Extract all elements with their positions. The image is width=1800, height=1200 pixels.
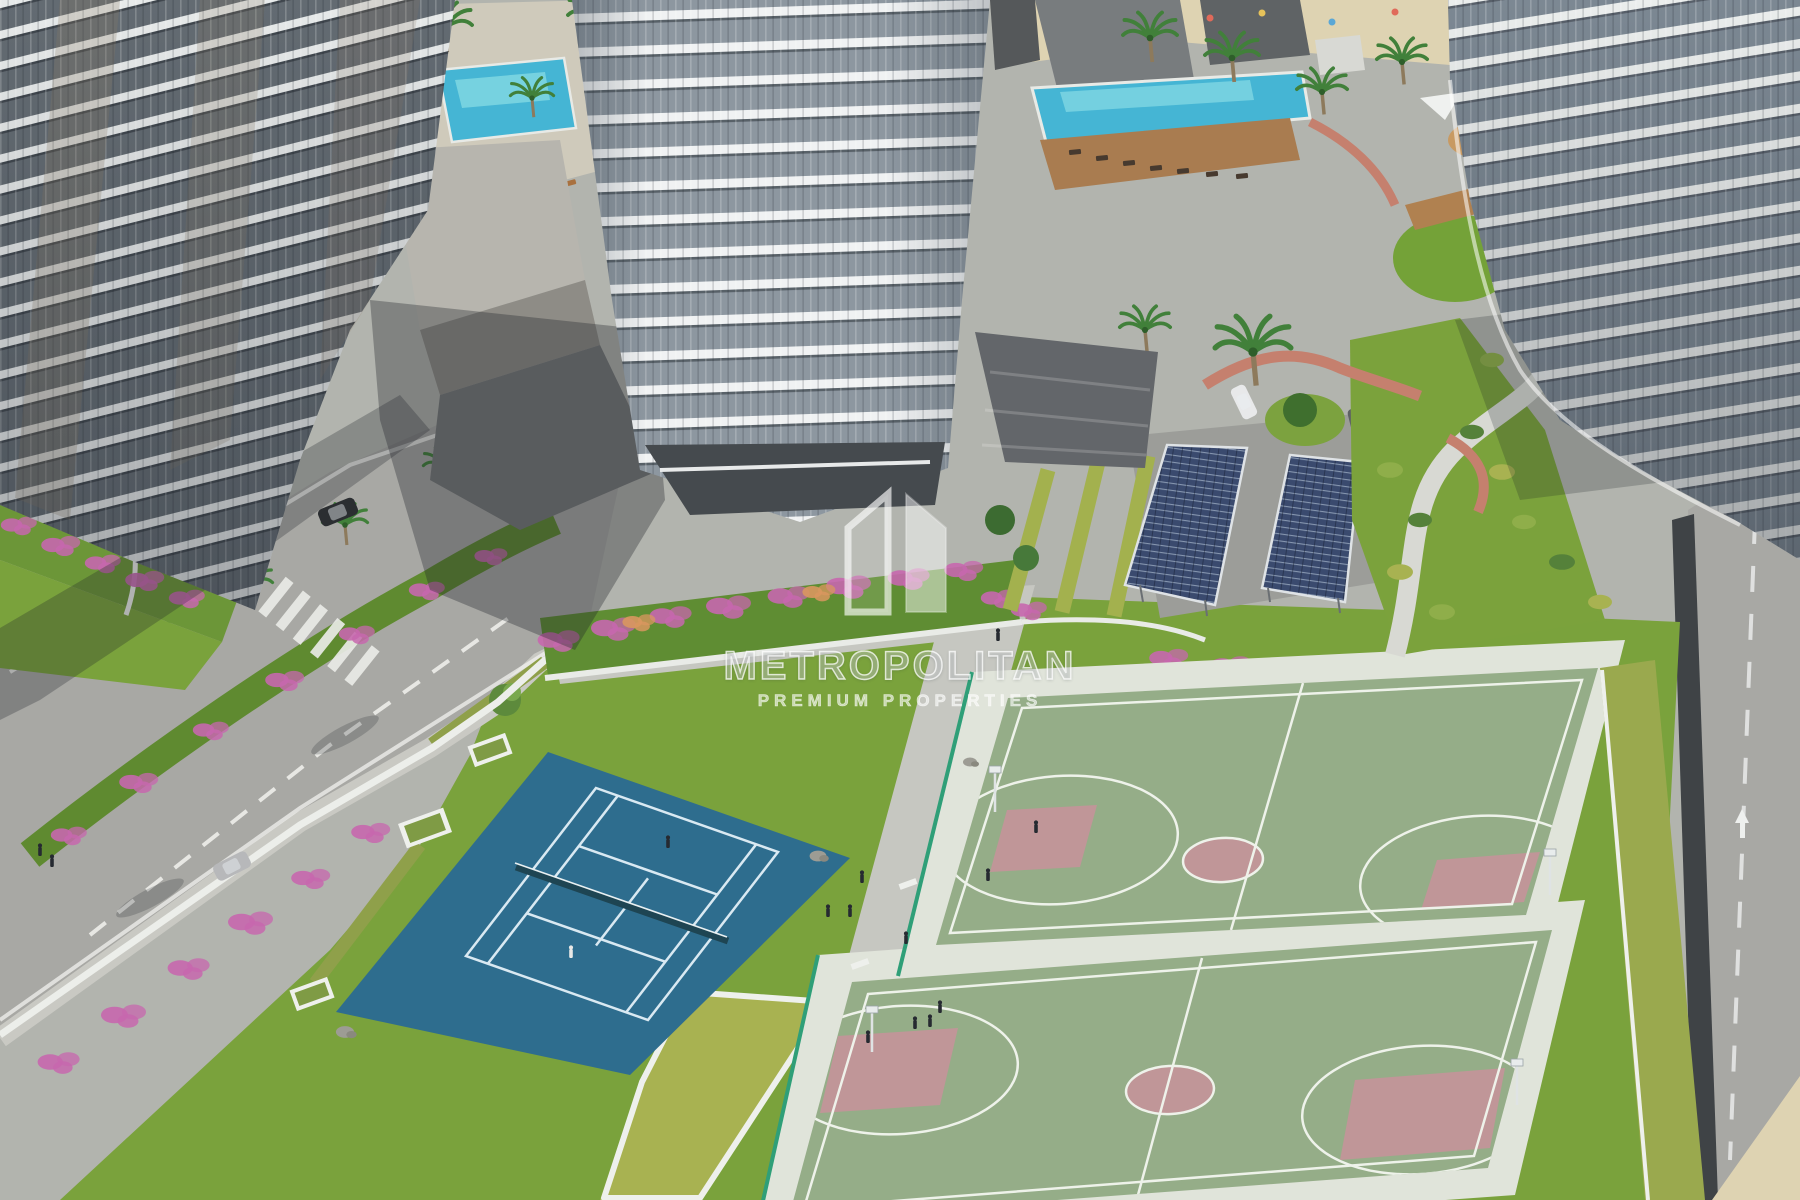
- tennis-player: [666, 835, 670, 848]
- key-lower-left: [820, 1028, 958, 1113]
- basketball-player: [866, 1030, 870, 1043]
- aerial-property-render: METROPOLITAN PREMIUM PROPERTIES: [0, 0, 1800, 1200]
- basketball-player: [1034, 820, 1038, 833]
- shrub: [1512, 515, 1536, 529]
- tree: [985, 505, 1015, 535]
- podium-terraces: [975, 332, 1158, 468]
- pedestrian: [38, 843, 42, 856]
- shrub: [1549, 554, 1575, 570]
- key-upper-right: [1421, 852, 1540, 910]
- key-lower-right: [1340, 1068, 1505, 1160]
- basketball-player: [928, 1014, 932, 1027]
- shrub: [1387, 564, 1413, 580]
- umbrella: [1259, 10, 1266, 17]
- tennis-player-white: [569, 945, 573, 958]
- shrub: [1408, 513, 1432, 527]
- tree: [1013, 545, 1039, 571]
- arrow-stem: [1740, 822, 1745, 838]
- umbrella: [1329, 19, 1336, 26]
- key-upper-left: [990, 805, 1097, 872]
- person: [860, 870, 864, 883]
- white-hut: [1315, 35, 1365, 75]
- small-roof: [990, 0, 1040, 70]
- person: [996, 628, 1000, 641]
- shrub: [1460, 425, 1484, 439]
- shrub: [1429, 604, 1455, 620]
- tower-entrance: [645, 442, 945, 515]
- person: [938, 1000, 942, 1013]
- island-tree: [1283, 393, 1317, 427]
- render-scene: [0, 0, 1800, 1200]
- pedestrian: [50, 854, 54, 867]
- shrub: [1588, 595, 1612, 609]
- umbrella: [1207, 15, 1214, 22]
- basketball-player: [986, 868, 990, 881]
- shrub: [1377, 462, 1403, 478]
- person: [848, 904, 852, 917]
- person: [904, 931, 908, 944]
- person: [913, 1016, 917, 1029]
- dark-roof: [1200, 0, 1310, 65]
- person: [826, 904, 830, 917]
- umbrella: [1392, 9, 1399, 16]
